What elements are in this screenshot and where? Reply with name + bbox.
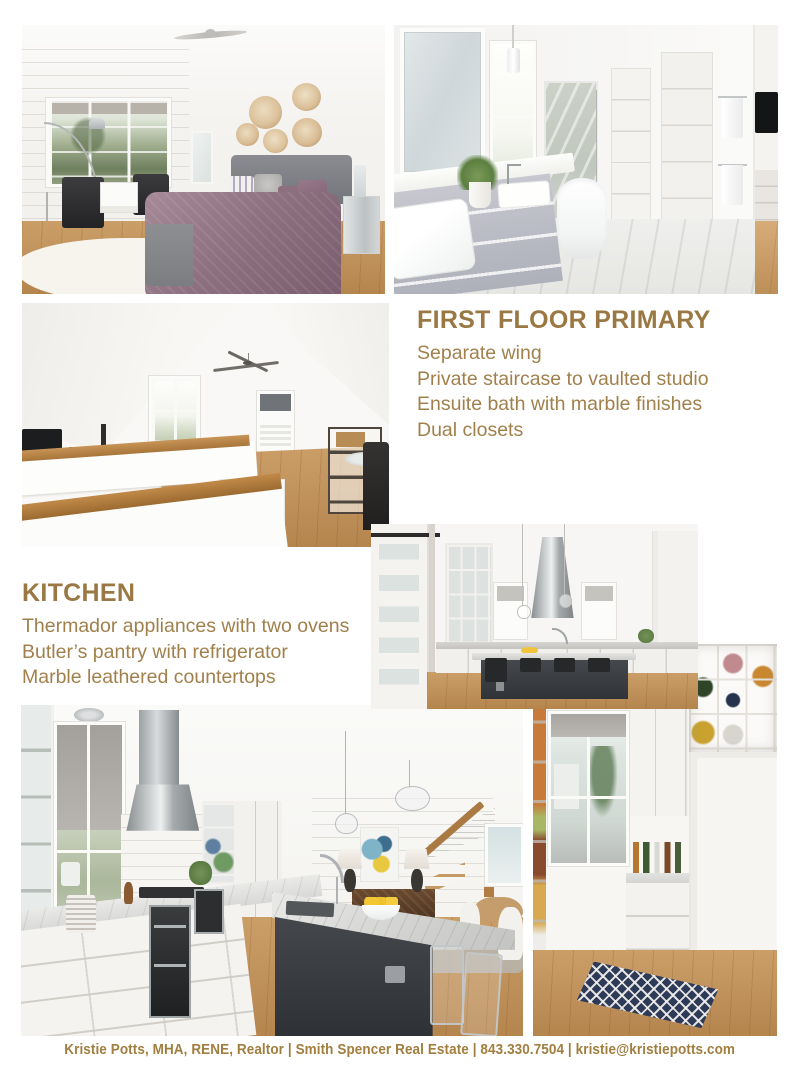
shelf-box (336, 432, 365, 447)
photo-vaulted-studio (22, 303, 389, 547)
island-outlet (385, 966, 405, 983)
canister (66, 895, 96, 933)
bar-stool (520, 658, 541, 672)
bed-base (145, 224, 192, 286)
vanity-mirror (400, 28, 485, 176)
ghost-stool (460, 952, 502, 1036)
oven-microwave (194, 889, 224, 934)
lamp-body (411, 869, 423, 892)
photo-primary-bedroom (22, 25, 385, 294)
palm-tree (585, 746, 620, 823)
footer-contact-line: Kristie Potts, MHA, RENE, Realtor | Smit… (65, 1041, 736, 1058)
lamp-body (344, 869, 356, 892)
white-chest (100, 182, 138, 212)
pendant-cord (522, 524, 523, 607)
bar-bottles (633, 842, 684, 873)
farmhouse-sink (286, 901, 334, 917)
pendant-cord (345, 731, 346, 814)
ceiling-sconce (74, 708, 104, 721)
mirrored-nightstand (343, 196, 379, 254)
tall-cabinets (652, 531, 698, 651)
kitchen-heading: KITCHEN (22, 579, 394, 607)
photo-kitchen-galley (21, 705, 523, 1036)
hood-flue (139, 710, 179, 786)
bar-stool (485, 658, 506, 682)
wall-oven (149, 905, 191, 1018)
vessel-sink (497, 181, 551, 209)
white-car (61, 862, 81, 886)
bedroom-floor-glimpse (753, 221, 778, 294)
glass-pendant (517, 605, 530, 618)
doorway-shadow (429, 524, 435, 672)
studio-window (257, 391, 294, 452)
pantry-window (548, 711, 630, 866)
kitchen-window (582, 583, 616, 639)
primary-feature: Dual closets (417, 418, 789, 444)
pepper-mill (124, 882, 134, 904)
photo-primary-bathroom (394, 25, 778, 294)
plant (189, 861, 212, 886)
bar-stool (554, 658, 575, 672)
pendant-cord (564, 524, 565, 596)
glass-cabinet (445, 543, 493, 652)
wine-rack (689, 644, 777, 752)
leaning-mirror (191, 131, 213, 183)
wall-basket (292, 118, 322, 148)
primary-section: FIRST FLOOR PRIMARY Separate wing Privat… (417, 306, 789, 443)
pendant-cord (512, 25, 514, 49)
wall-basket (263, 129, 288, 154)
freestanding-tub (557, 178, 607, 259)
vessel-sink (394, 197, 477, 280)
lamp-shade (404, 849, 430, 869)
photo-kitchen-island (371, 524, 698, 709)
tall-cabinet-panel (689, 752, 777, 956)
faucet-stem (336, 877, 338, 903)
footer: Kristie Potts, MHA, RENE, Realtor | Smit… (0, 1041, 800, 1059)
table-lamp (354, 165, 366, 197)
wall-basket (292, 83, 320, 111)
towel (722, 165, 743, 205)
kitchen-section: KITCHEN Thermador appliances with two ov… (22, 579, 394, 691)
far-window (485, 824, 523, 886)
primary-feature: Separate wing (417, 341, 789, 367)
wall-tv (755, 92, 778, 132)
primary-feature: Ensuite bath with marble finishes (417, 392, 789, 418)
primary-heading: FIRST FLOOR PRIMARY (417, 306, 789, 334)
dresser (755, 170, 778, 221)
glass-pendant (335, 813, 358, 835)
faucet-spout (507, 164, 520, 166)
closet-door (611, 68, 651, 237)
faucet (507, 164, 509, 184)
wall-basket (236, 123, 259, 146)
glass-pendant (559, 594, 572, 607)
accent-chair (62, 177, 104, 228)
gooseneck-faucet (552, 628, 567, 645)
glass-display-cabinet (21, 705, 54, 923)
flyer-page: FIRST FLOOR PRIMARY Separate wing Privat… (0, 0, 800, 1067)
lamp-shade (336, 849, 362, 869)
towel (722, 98, 743, 138)
abstract-art (360, 827, 400, 882)
glass-pendant (395, 786, 429, 811)
bistro-chair (363, 442, 389, 530)
white-house (554, 764, 580, 809)
bar-counter (626, 873, 689, 883)
kitchen-feature: Butler’s pantry with refrigerator (22, 640, 394, 666)
plant (638, 629, 654, 644)
hood-canopy (126, 784, 199, 830)
bar-stool (588, 658, 609, 672)
barn-door (371, 524, 430, 709)
plant-pot (469, 182, 491, 208)
pendant-light (507, 48, 520, 74)
arc-lamp-shade (89, 118, 105, 129)
primary-feature: Private staircase to vaulted studio (417, 367, 789, 393)
kitchen-feature: Thermador appliances with two ovens (22, 614, 394, 640)
ghost-stool (430, 945, 464, 1025)
pendant-cord (409, 760, 410, 788)
kitchen-feature: Marble leathered countertops (22, 665, 394, 691)
